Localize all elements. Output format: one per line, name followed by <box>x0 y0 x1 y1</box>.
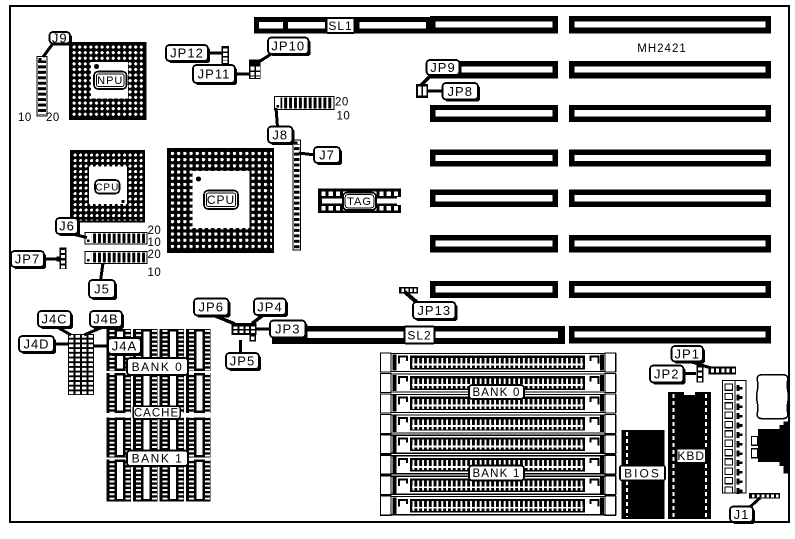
svg-text:CACHE: CACHE <box>134 407 179 419</box>
svg-text:J7: J7 <box>319 148 335 163</box>
svg-text:JP12: JP12 <box>170 46 204 61</box>
svg-text:JP5: JP5 <box>230 354 255 369</box>
svg-text:SL1: SL1 <box>328 19 352 33</box>
svg-text:BANK 1: BANK 1 <box>472 468 520 480</box>
svg-text:JP2: JP2 <box>654 367 679 382</box>
svg-text:JP6: JP6 <box>199 300 224 315</box>
svg-text:NPU: NPU <box>97 75 123 87</box>
svg-text:BANK 0: BANK 0 <box>472 387 520 399</box>
svg-text:J4A: J4A <box>112 339 137 354</box>
svg-text:TAG: TAG <box>347 196 372 208</box>
svg-text:JP11: JP11 <box>198 67 231 82</box>
svg-text:J4B: J4B <box>93 312 118 327</box>
svg-text:KBD: KBD <box>677 449 705 463</box>
svg-text:20: 20 <box>148 249 162 261</box>
svg-text:20: 20 <box>335 97 349 109</box>
svg-text:JP1: JP1 <box>675 346 700 361</box>
svg-text:JP3: JP3 <box>275 322 300 337</box>
svg-text:JP9: JP9 <box>430 60 455 75</box>
svg-text:J9: J9 <box>52 30 68 45</box>
svg-text:BIOS: BIOS <box>624 466 661 480</box>
svg-text:10: 10 <box>148 267 162 279</box>
svg-text:10: 10 <box>337 111 351 123</box>
svg-text:CPU: CPU <box>95 182 119 193</box>
svg-text:J1: J1 <box>734 507 750 522</box>
svg-text:BANK 0: BANK 0 <box>132 360 184 374</box>
svg-text:JP4: JP4 <box>257 299 282 314</box>
svg-text:10: 10 <box>148 237 162 249</box>
svg-text:J8: J8 <box>272 127 288 142</box>
svg-text:JP10: JP10 <box>271 38 305 53</box>
svg-text:JP7: JP7 <box>15 252 40 267</box>
svg-text:20: 20 <box>46 112 60 124</box>
svg-text:MH2421: MH2421 <box>637 43 686 55</box>
svg-text:J4C: J4C <box>41 312 67 327</box>
svg-text:J4D: J4D <box>23 337 49 352</box>
svg-text:JP8: JP8 <box>448 84 473 99</box>
svg-text:J6: J6 <box>59 219 75 234</box>
svg-text:SL2: SL2 <box>407 328 431 342</box>
svg-text:BANK 1: BANK 1 <box>132 452 184 466</box>
svg-text:CPU: CPU <box>207 193 235 207</box>
svg-text:20: 20 <box>148 225 162 237</box>
svg-text:10: 10 <box>18 112 32 124</box>
svg-text:J5: J5 <box>94 282 110 297</box>
svg-text:JP13: JP13 <box>417 303 451 318</box>
